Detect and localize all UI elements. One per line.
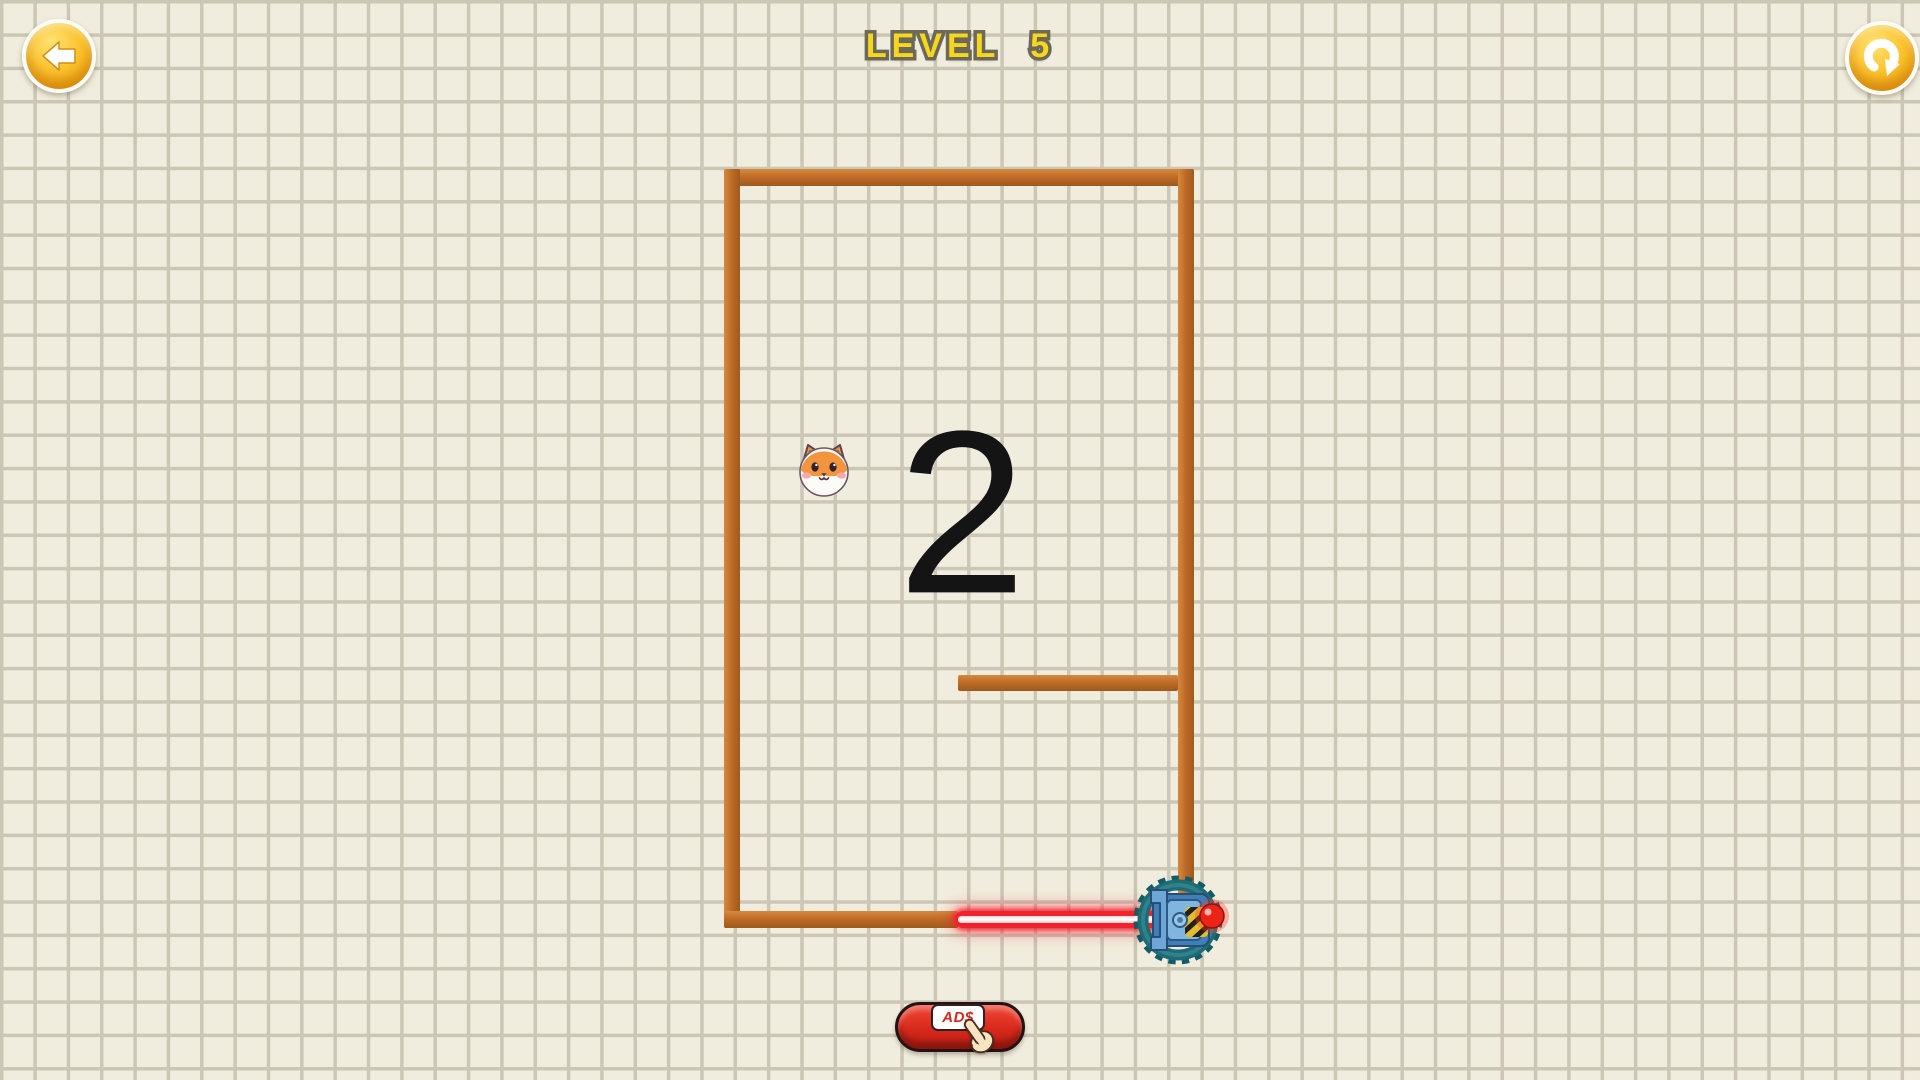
wall-middle xyxy=(958,675,1178,691)
shiba-dog-face xyxy=(796,442,852,498)
game-screen[interactable]: LEVEL 5 xyxy=(0,0,1920,1080)
wall-top xyxy=(724,169,1194,186)
wall-bottom xyxy=(724,911,958,928)
ads-button[interactable]: AD$ xyxy=(895,1002,1025,1052)
move-counter: 2 xyxy=(897,397,1026,629)
pointing-hand-icon xyxy=(956,1013,1000,1059)
level-title: LEVEL 5 xyxy=(0,26,1920,66)
laser-turret xyxy=(1123,865,1233,975)
wall-right xyxy=(1178,169,1194,904)
wall-left xyxy=(724,169,740,928)
